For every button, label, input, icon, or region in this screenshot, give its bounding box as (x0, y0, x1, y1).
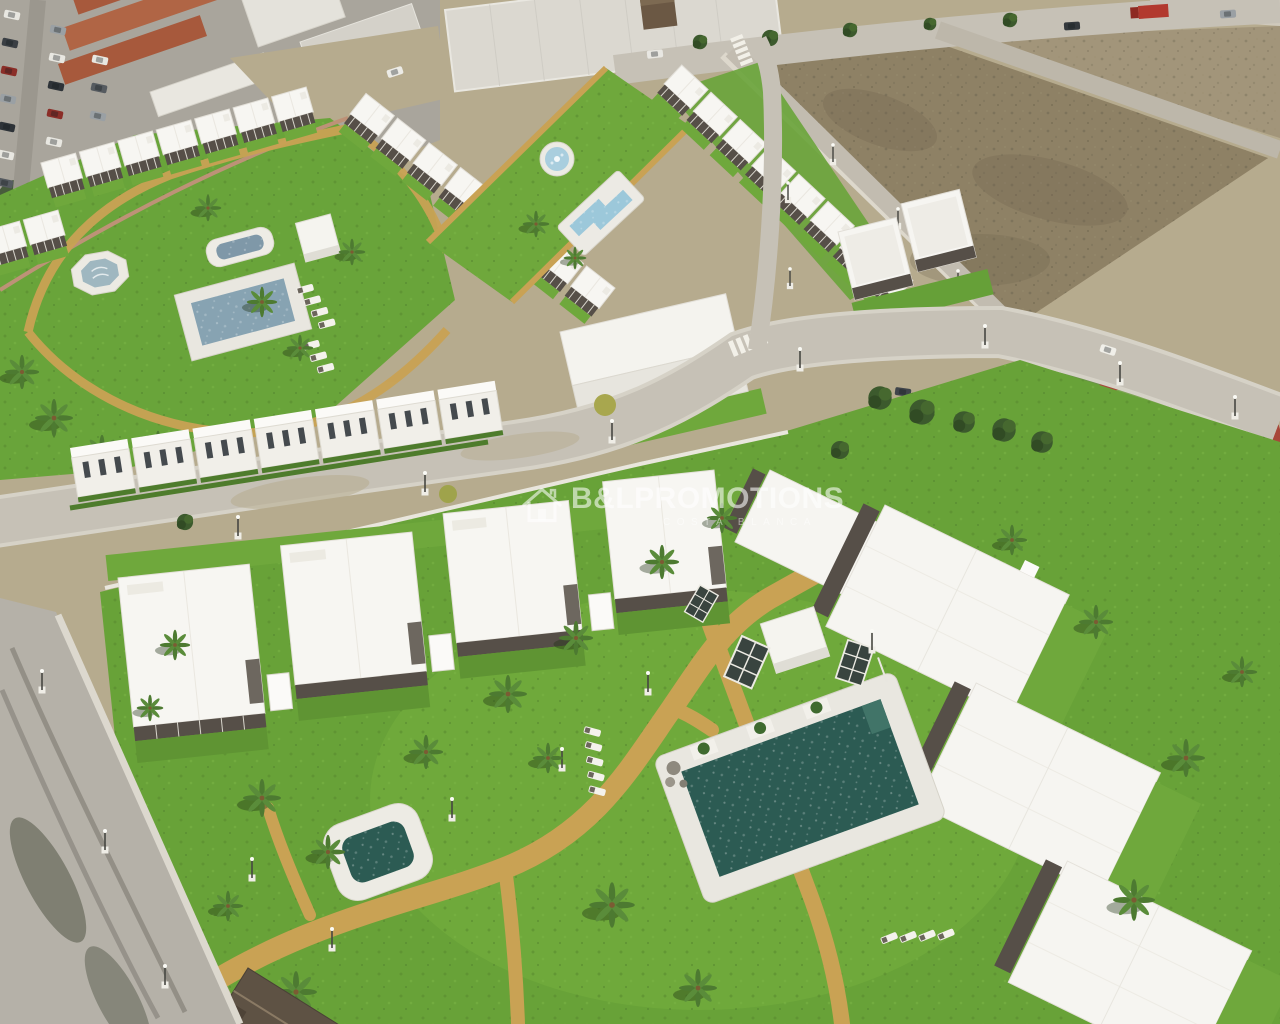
stairway (429, 634, 455, 672)
apartment-block (281, 532, 431, 721)
stairway (267, 673, 293, 711)
apartment-block (603, 470, 730, 635)
apartment-block (118, 564, 269, 763)
rooftop-tower (640, 0, 677, 30)
scene (0, 0, 1280, 1024)
stairway (588, 593, 614, 631)
round-fountain (540, 142, 574, 176)
aerial-render-canvas: B&LPROMOTIONS COSTA BLANCA (0, 0, 1280, 1024)
apartment-block (443, 500, 586, 678)
